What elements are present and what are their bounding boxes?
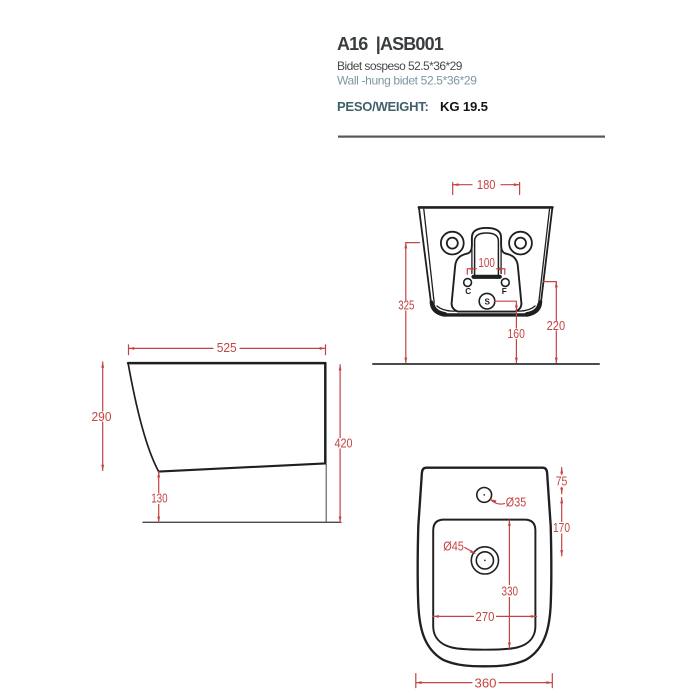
- svg-text:220: 220: [547, 318, 566, 333]
- svg-text:75: 75: [556, 474, 568, 489]
- svg-text:360: 360: [475, 675, 497, 690]
- svg-text:Ø45: Ø45: [443, 538, 464, 553]
- svg-text:525: 525: [217, 340, 237, 355]
- svg-text:Wall -hung bidet 52.5*36*29: Wall -hung bidet 52.5*36*29: [337, 74, 477, 88]
- svg-text:C: C: [465, 287, 471, 296]
- svg-text:S: S: [484, 297, 490, 306]
- svg-text:180: 180: [477, 177, 496, 192]
- svg-text:100: 100: [478, 255, 495, 270]
- svg-text:290: 290: [92, 409, 112, 424]
- svg-text:160: 160: [508, 326, 525, 341]
- svg-text:Bidet sospeso 52.5*36*29: Bidet sospeso 52.5*36*29: [337, 59, 463, 73]
- svg-text:PESO/WEIGHT:: PESO/WEIGHT:: [337, 99, 429, 114]
- svg-text:330: 330: [502, 584, 519, 599]
- svg-text:F: F: [502, 287, 507, 296]
- svg-text:270: 270: [476, 609, 495, 624]
- svg-text:170: 170: [553, 520, 570, 535]
- svg-text:KG 19.5: KG 19.5: [440, 99, 488, 114]
- svg-text:325: 325: [398, 297, 414, 312]
- svg-text:130: 130: [151, 491, 167, 506]
- svg-text:Ø35: Ø35: [506, 495, 526, 510]
- svg-text:420: 420: [335, 436, 353, 451]
- svg-text:A16 |ASB001: A16 |ASB001: [337, 34, 444, 54]
